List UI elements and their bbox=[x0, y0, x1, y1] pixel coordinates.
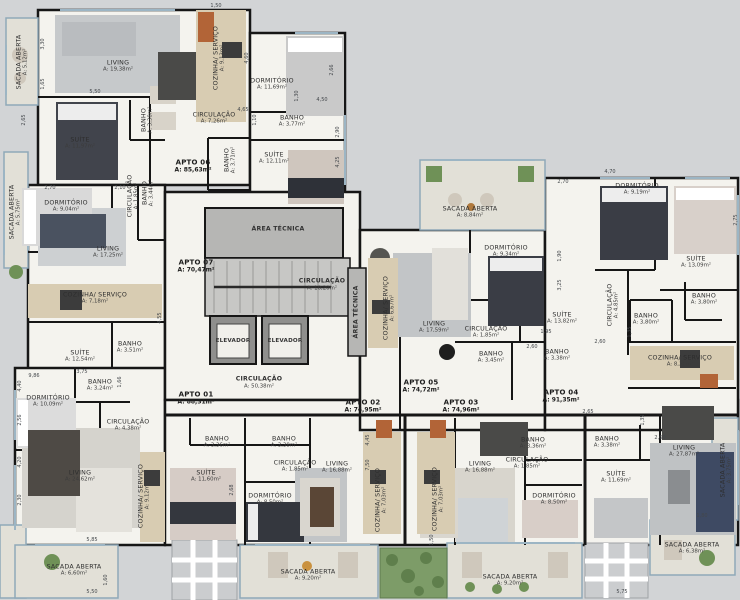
feature-label-elevador: ELEVADOR bbox=[268, 338, 303, 344]
dimension-label: 2,90 bbox=[335, 126, 341, 137]
dimension-label: 3,30 bbox=[40, 38, 46, 49]
room-label-suite: SUÍTEA: 13,82m² bbox=[547, 311, 577, 324]
room-label-sacada-aberta: SACADA ABERTAA: 9,20m² bbox=[281, 568, 336, 581]
feature-label-area-tecnica: ÁREA TÉCNICA bbox=[252, 227, 305, 234]
dimension-label: 2,60 bbox=[526, 344, 537, 350]
room-label-banho: BANHOA: 3,80m² bbox=[633, 312, 660, 325]
dimension-label: 3,25 bbox=[557, 279, 563, 290]
room-label-banho: BANHOA: 3,24m² bbox=[87, 378, 114, 391]
room-label-living: LIVINGA: 27,87m² bbox=[669, 444, 699, 457]
apartment-label-apto-04: APTO 04A: 91,35m² bbox=[542, 390, 579, 405]
room-label-circulacao: CIRCULAÇÃOA: 7,26m² bbox=[193, 111, 236, 124]
room-label-sacada-aberta: SACADA ABERTAA: 6,60m² bbox=[47, 563, 102, 576]
dimension-label: 5,50 bbox=[89, 89, 100, 95]
room-label-living: LIVINGA: 24,62m² bbox=[65, 469, 95, 482]
room-label-banho: BANHOA: 3,44m² bbox=[141, 180, 154, 207]
dimension-label: 1,65 bbox=[40, 78, 46, 89]
room-label-dormitorio: DORMITÓRIOA: 11,69m² bbox=[250, 77, 293, 90]
dimension-label: 1,50 bbox=[429, 534, 435, 545]
dimension-label: 4,60 bbox=[244, 52, 250, 63]
room-label-living: LIVINGA: 17,25m² bbox=[93, 245, 123, 258]
feature-label-area-tecnica: ÁREA TÉCNICA bbox=[354, 286, 361, 339]
room-label-sacada-aberta: SACADA ABERTAA: 6,38m² bbox=[665, 541, 720, 554]
feature-label-circulacao: CIRCULAÇÃOA: 10,20m² bbox=[299, 279, 346, 292]
apartment-label-apto-07: APTO 07A: 70,47m² bbox=[177, 260, 214, 275]
dimension-label: 2,70 bbox=[44, 185, 55, 191]
room-label-circulacao: CIRCULAÇÃOA: 4,38m² bbox=[107, 418, 150, 431]
room-label-circulacao: CIRCULAÇÃOA: 1,85m² bbox=[126, 175, 139, 218]
floor-plan: SACADA ABERTAA: 5,12m²LIVINGA: 19,38m²CO… bbox=[0, 0, 740, 600]
room-label-sacada-aberta: SACADA ABERTAA: 8,84m² bbox=[443, 205, 498, 218]
feature-label-elevador: ELEVADOR bbox=[216, 338, 251, 344]
room-label-living: LIVINGA: 16,88m² bbox=[465, 460, 495, 473]
apartment-label-apto-02: APTO 02A: 74,95m² bbox=[344, 400, 381, 415]
room-label-banho: BANHOA: 3,51m² bbox=[117, 340, 144, 353]
room-label-banho: BANHOA: 3,38m² bbox=[271, 435, 298, 448]
dimension-label: 2,56 bbox=[17, 414, 23, 425]
apartment-label-apto-06: APTO 06A: 85,63m² bbox=[174, 160, 211, 175]
room-label-circulacao: CIRCULAÇÃOA: 4,85m² bbox=[606, 284, 619, 327]
dimension-label: 4,70 bbox=[604, 169, 615, 175]
dimension-label: 5,50 bbox=[86, 589, 97, 595]
dimension-label: 2,65 bbox=[21, 114, 27, 125]
dimension-label: 1,80 bbox=[696, 513, 707, 519]
dimension-label: 4,25 bbox=[335, 156, 341, 167]
dimension-label: 1,90 bbox=[557, 250, 563, 261]
dimension-label: 3,75 bbox=[76, 369, 87, 375]
dimension-label: 1,66 bbox=[117, 376, 123, 387]
room-label-cozinha-servico: COZINHA/ SERVIÇOA: 9,12m² bbox=[137, 464, 150, 528]
room-label-banho: BANHOA: 3,71m² bbox=[223, 147, 236, 174]
room-label-sacada-aberta: SACADA ABERTAA: 5,75m² bbox=[8, 185, 21, 240]
dimension-label: 2,10 bbox=[114, 185, 125, 191]
room-label-living: LIVINGA: 19,38m² bbox=[103, 59, 133, 72]
room-label-dormitorio: DORMITÓRIOA: 10,09m² bbox=[26, 394, 69, 407]
apartment-label-apto-01: APTO 01A: 88,31m² bbox=[177, 392, 214, 407]
dimension-label: 2,60 bbox=[594, 339, 605, 345]
room-label-suite: SUÍTEA: 11,97m² bbox=[65, 136, 95, 149]
room-label-suite: SUÍTEA: 11,69m² bbox=[601, 470, 631, 483]
dimension-label: 2,68 bbox=[229, 484, 235, 495]
room-label-suite: SUÍTEA: 12,54m² bbox=[65, 349, 95, 362]
room-label-cozinha-servico: COZINHA/ SERVIÇOA: 6,67m² bbox=[382, 276, 395, 340]
room-label-sacada-aberta: SACADA ABERTAA: 3,75m² bbox=[719, 443, 732, 498]
dimension-label: 1,10 bbox=[252, 114, 258, 125]
room-label-dormitorio: DORMITÓRIOA: 9,19m² bbox=[615, 182, 658, 195]
apartment-label-apto-05: APTO 05A: 74,72m² bbox=[402, 380, 439, 395]
room-label-banho: BANHOA: 3,38m² bbox=[140, 107, 153, 134]
dimension-label: 2,30 bbox=[17, 494, 23, 505]
apartment-label-apto-03: APTO 03A: 74,96m² bbox=[442, 400, 479, 415]
room-label-cozinha-servico: COZINHA/ SERVIÇOA: 7,03m² bbox=[431, 467, 444, 531]
dimension-label: 2,60 bbox=[654, 435, 665, 441]
room-label-cozinha-servico: COZINHA/ SERVIÇOA: 7,03m² bbox=[374, 468, 387, 532]
dimension-label: 4,45 bbox=[365, 434, 371, 445]
dimension-label: 4,50 bbox=[316, 97, 327, 103]
room-label-cozinha-servico: COZINHA/ SERVIÇOA: 8,26m² bbox=[648, 354, 712, 367]
dimension-label: 1,35 bbox=[627, 326, 633, 337]
room-label-circulacao: CIRCULAÇÃOA: 1,85m² bbox=[465, 325, 508, 338]
room-label-suite: SUÍTEA: 12,11m² bbox=[259, 151, 289, 164]
room-label-banho: BANHOA: 3,36m² bbox=[204, 435, 231, 448]
labels-layer: SACADA ABERTAA: 5,12m²LIVINGA: 19,38m²CO… bbox=[0, 0, 740, 600]
dimension-label: 9,86 bbox=[28, 373, 39, 379]
dimension-label: 2,75 bbox=[733, 214, 739, 225]
room-label-banho: BANHOA: 3,38m² bbox=[594, 435, 621, 448]
dimension-label: 4,65 bbox=[237, 107, 248, 113]
dimension-label: 5,85 bbox=[86, 537, 97, 543]
room-label-banho: BANHOA: 3,80m² bbox=[691, 292, 718, 305]
dimension-label: 2,65 bbox=[582, 409, 593, 415]
room-label-sacada-aberta: SACADA ABERTAA: 5,12m² bbox=[15, 35, 28, 90]
dimension-label: 4,40 bbox=[17, 380, 23, 391]
dimension-label: 7,50 bbox=[365, 459, 371, 470]
dimension-label: 1,95 bbox=[540, 329, 551, 335]
dimension-label: 4,55 bbox=[157, 312, 163, 323]
room-label-banho: BANHOA: 3,45m² bbox=[478, 350, 505, 363]
dimension-label: 2,66 bbox=[329, 64, 335, 75]
dimension-label: 2,70 bbox=[557, 179, 568, 185]
dimension-label: 1,60 bbox=[103, 574, 109, 585]
room-label-circulacao: CIRCULAÇÃOA: 1,85m² bbox=[274, 459, 317, 472]
dimension-label: 1,30 bbox=[294, 90, 300, 101]
room-label-banho: BANHOA: 3,36m² bbox=[520, 436, 547, 449]
dimension-label: 1,35 bbox=[640, 414, 646, 425]
room-label-sacada-aberta: SACADA ABERTAA: 9,20m² bbox=[483, 573, 538, 586]
room-label-dormitorio: DORMITÓRIOA: 9,04m² bbox=[44, 199, 87, 212]
room-label-living: LIVINGA: 17,59m² bbox=[419, 320, 449, 333]
feature-label-circulacao: CIRCULAÇÃOA: 50,38m² bbox=[236, 377, 283, 390]
room-label-dormitorio: DORMITÓRIOA: 8,50m² bbox=[532, 492, 575, 505]
dimension-label: 5,75 bbox=[616, 589, 627, 595]
room-label-living: LIVINGA: 16,88m² bbox=[322, 460, 352, 473]
room-label-banho: BANHOA: 3,77m² bbox=[279, 114, 306, 127]
room-label-suite: SUÍTEA: 13,09m² bbox=[681, 255, 711, 268]
room-label-cozinha-servico: COZINHA/ SERVIÇOA: 9,13m² bbox=[212, 26, 225, 90]
room-label-circulacao: CIRCULAÇÃOA: 1,85m² bbox=[506, 456, 549, 469]
room-label-cozinha-servico: COZINHA/ SERVIÇOA: 7,18m² bbox=[63, 291, 127, 304]
dimension-label: 4,20 bbox=[17, 456, 23, 467]
dimension-label: 1,50 bbox=[210, 3, 221, 9]
room-label-banho: BANHOA: 3,38m² bbox=[544, 348, 571, 361]
room-label-dormitorio: DORMITÓRIOA: 9,34m² bbox=[484, 244, 527, 257]
room-label-dormitorio: DORMITÓRIOA: 8,50m² bbox=[248, 492, 291, 505]
room-label-suite: SUÍTEA: 11,60m² bbox=[191, 469, 221, 482]
